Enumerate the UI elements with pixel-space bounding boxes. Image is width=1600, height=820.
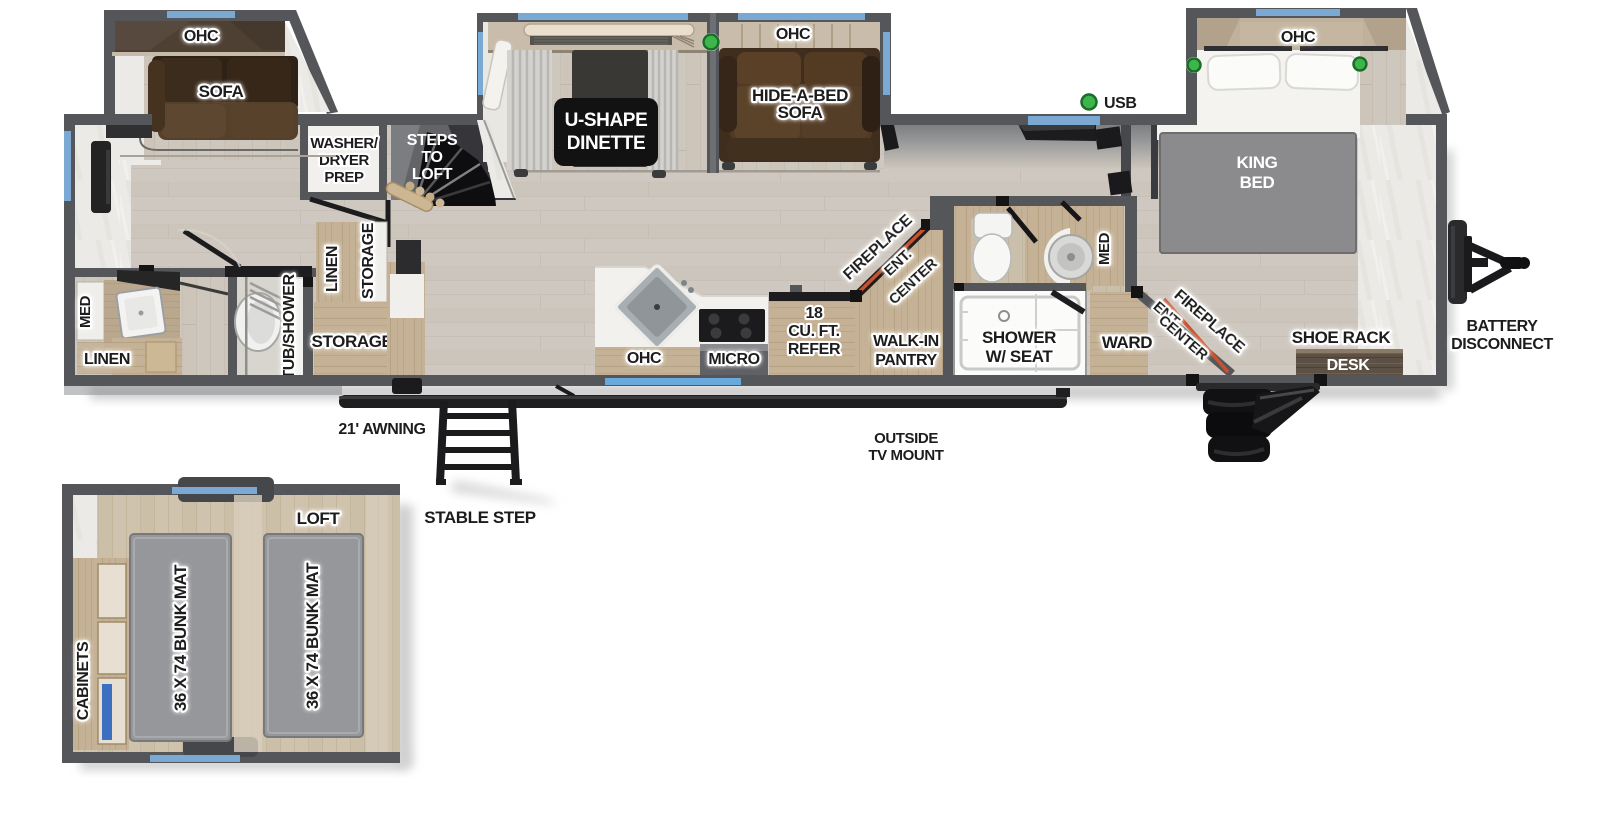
svg-text:WARD: WARD bbox=[1102, 333, 1152, 352]
svg-text:PREP: PREP bbox=[324, 169, 364, 186]
svg-text:TO: TO bbox=[421, 149, 442, 166]
svg-text:OHC: OHC bbox=[184, 28, 219, 45]
svg-text:SHOWER: SHOWER bbox=[982, 328, 1056, 347]
svg-text:CU. FT.: CU. FT. bbox=[788, 323, 839, 340]
svg-text:W/ SEAT: W/ SEAT bbox=[986, 347, 1054, 366]
svg-text:LINEN: LINEN bbox=[324, 246, 341, 292]
svg-text:WASHER/: WASHER/ bbox=[310, 135, 378, 152]
svg-text:OUTSIDE: OUTSIDE bbox=[874, 430, 938, 447]
svg-text:WALK-IN: WALK-IN bbox=[873, 333, 939, 350]
svg-text:USB: USB bbox=[1104, 95, 1137, 112]
svg-text:SHOE RACK: SHOE RACK bbox=[1292, 328, 1392, 347]
svg-text:REFER: REFER bbox=[788, 341, 841, 358]
svg-text:CABINETS: CABINETS bbox=[75, 641, 92, 720]
svg-text:LINEN: LINEN bbox=[84, 351, 130, 368]
svg-text:DINETTE: DINETTE bbox=[567, 133, 645, 154]
svg-text:STORAGE: STORAGE bbox=[360, 222, 377, 299]
svg-text:STABLE STEP: STABLE STEP bbox=[424, 508, 536, 527]
svg-text:DRYER: DRYER bbox=[319, 152, 370, 169]
svg-text:OHC: OHC bbox=[776, 26, 811, 43]
svg-text:SOFA: SOFA bbox=[199, 82, 244, 101]
svg-text:DESK: DESK bbox=[1327, 357, 1371, 374]
svg-text:STEPS: STEPS bbox=[407, 132, 458, 149]
svg-text:36 X 74 BUNK MAT: 36 X 74 BUNK MAT bbox=[171, 564, 190, 711]
svg-text:TUB/SHOWER: TUB/SHOWER bbox=[281, 273, 298, 379]
svg-text:LOFT: LOFT bbox=[297, 509, 341, 528]
svg-text:DISCONNECT: DISCONNECT bbox=[1451, 336, 1553, 353]
svg-text:KING: KING bbox=[1237, 153, 1278, 172]
svg-text:U-SHAPE: U-SHAPE bbox=[565, 110, 648, 131]
svg-text:TV MOUNT: TV MOUNT bbox=[868, 447, 943, 464]
svg-text:21' AWNING: 21' AWNING bbox=[338, 421, 425, 438]
svg-text:SOFA: SOFA bbox=[778, 103, 823, 122]
svg-text:BED: BED bbox=[1240, 173, 1275, 192]
svg-text:MICRO: MICRO bbox=[708, 351, 759, 368]
svg-text:MED: MED bbox=[1096, 232, 1113, 265]
svg-text:OHC: OHC bbox=[1281, 29, 1316, 46]
svg-text:MED: MED bbox=[77, 295, 94, 328]
svg-text:36 X 74 BUNK MAT: 36 X 74 BUNK MAT bbox=[303, 562, 322, 709]
svg-text:OHC: OHC bbox=[627, 350, 662, 367]
svg-text:STORAGE: STORAGE bbox=[312, 332, 393, 351]
svg-text:PANTRY: PANTRY bbox=[875, 352, 937, 369]
svg-text:LOFT: LOFT bbox=[412, 166, 453, 183]
svg-text:18: 18 bbox=[806, 305, 823, 322]
svg-text:BATTERY: BATTERY bbox=[1467, 318, 1539, 335]
